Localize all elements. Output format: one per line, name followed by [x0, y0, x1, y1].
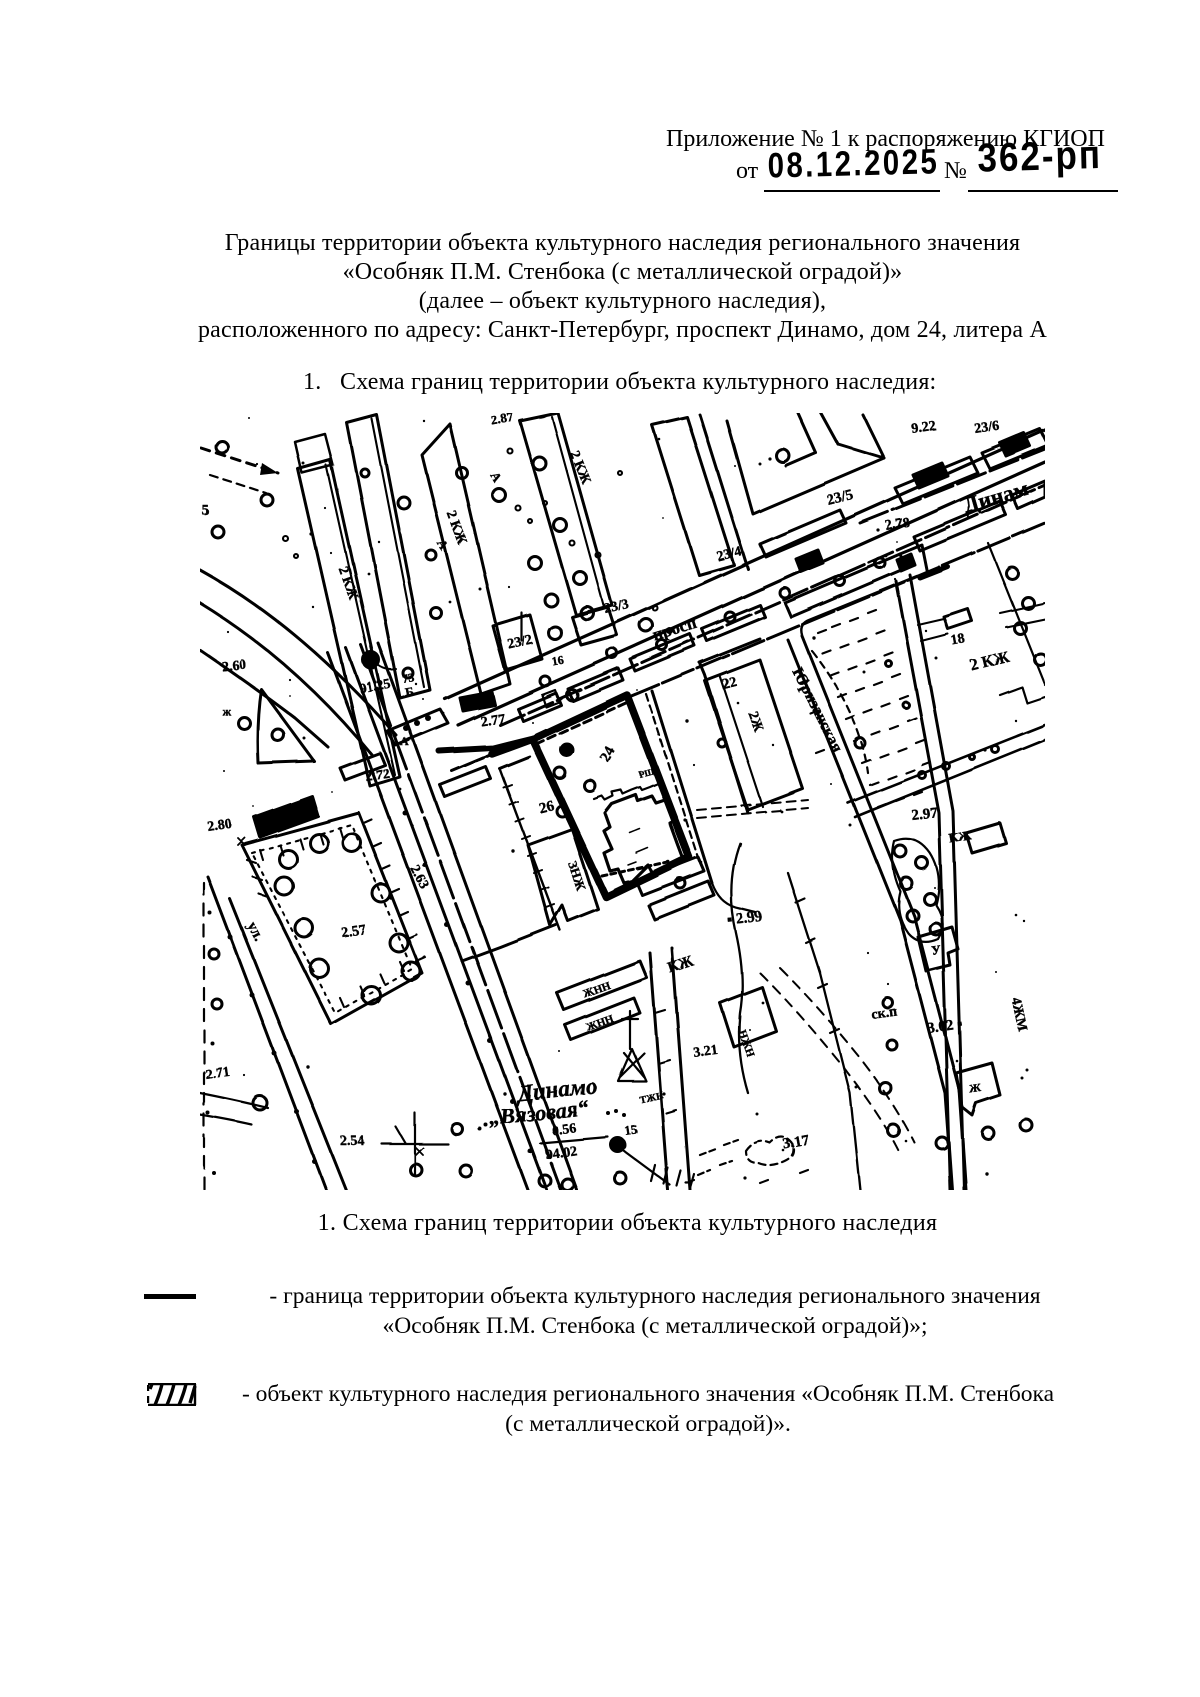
svg-text:3.02 ▪: 3.02 ▪	[926, 1016, 963, 1037]
svg-text:23/3: 23/3	[603, 597, 630, 617]
svg-text:РШ: РШ	[638, 766, 656, 780]
svg-text:2.71: 2.71	[204, 1065, 230, 1083]
svg-text:2.87: 2.87	[490, 413, 516, 428]
svg-text:9.22: 9.22	[910, 419, 936, 437]
svg-text:Динам: Динам	[960, 475, 1031, 517]
svg-text:2.97: 2.97	[911, 805, 939, 824]
svg-text:2 КЖ: 2 КЖ	[969, 649, 1012, 675]
svg-text:Ж: Ж	[968, 1080, 982, 1096]
svg-text:2.78: 2.78	[884, 516, 910, 534]
svg-text:КЖ: КЖ	[666, 954, 696, 977]
svg-text:23/4: 23/4	[715, 544, 743, 565]
svg-text:4ЖМ: 4ЖМ	[1008, 997, 1030, 1033]
svg-text:2Ж: 2Ж	[744, 709, 765, 734]
svg-text:У: У	[930, 942, 942, 958]
svg-text:2.54: 2.54	[340, 1134, 365, 1149]
svg-text:ж: ж	[222, 704, 231, 718]
svg-text:Б: Б	[404, 684, 415, 700]
svg-text:2.57: 2.57	[340, 923, 366, 941]
svg-text:5: 5	[202, 503, 210, 519]
svg-text:2.60: 2.60	[221, 657, 247, 674]
svg-text:23/2: 23/2	[507, 633, 534, 653]
svg-text:3.21: 3.21	[692, 1043, 718, 1061]
svg-text:23/5: 23/5	[825, 487, 855, 509]
svg-text:94.02: 94.02	[544, 1144, 577, 1163]
svg-text:А: А	[487, 469, 505, 485]
svg-text:2.80: 2.80	[206, 817, 232, 835]
svg-text:2.77: 2.77	[479, 712, 505, 730]
svg-text:18: 18	[950, 632, 966, 649]
svg-text:22: 22	[721, 675, 738, 693]
svg-text:16: 16	[550, 652, 564, 668]
svg-text:ЗНЖ: ЗНЖ	[565, 859, 589, 892]
svg-text:26: 26	[537, 798, 556, 817]
svg-text:А: А	[434, 537, 452, 553]
svg-text:3.17: 3.17	[782, 1133, 811, 1153]
svg-text:24: 24	[597, 744, 618, 765]
svg-text:0.56: 0.56	[550, 1121, 576, 1139]
svg-text:23/6: 23/6	[973, 419, 1000, 437]
svg-text:15: 15	[623, 1121, 638, 1138]
